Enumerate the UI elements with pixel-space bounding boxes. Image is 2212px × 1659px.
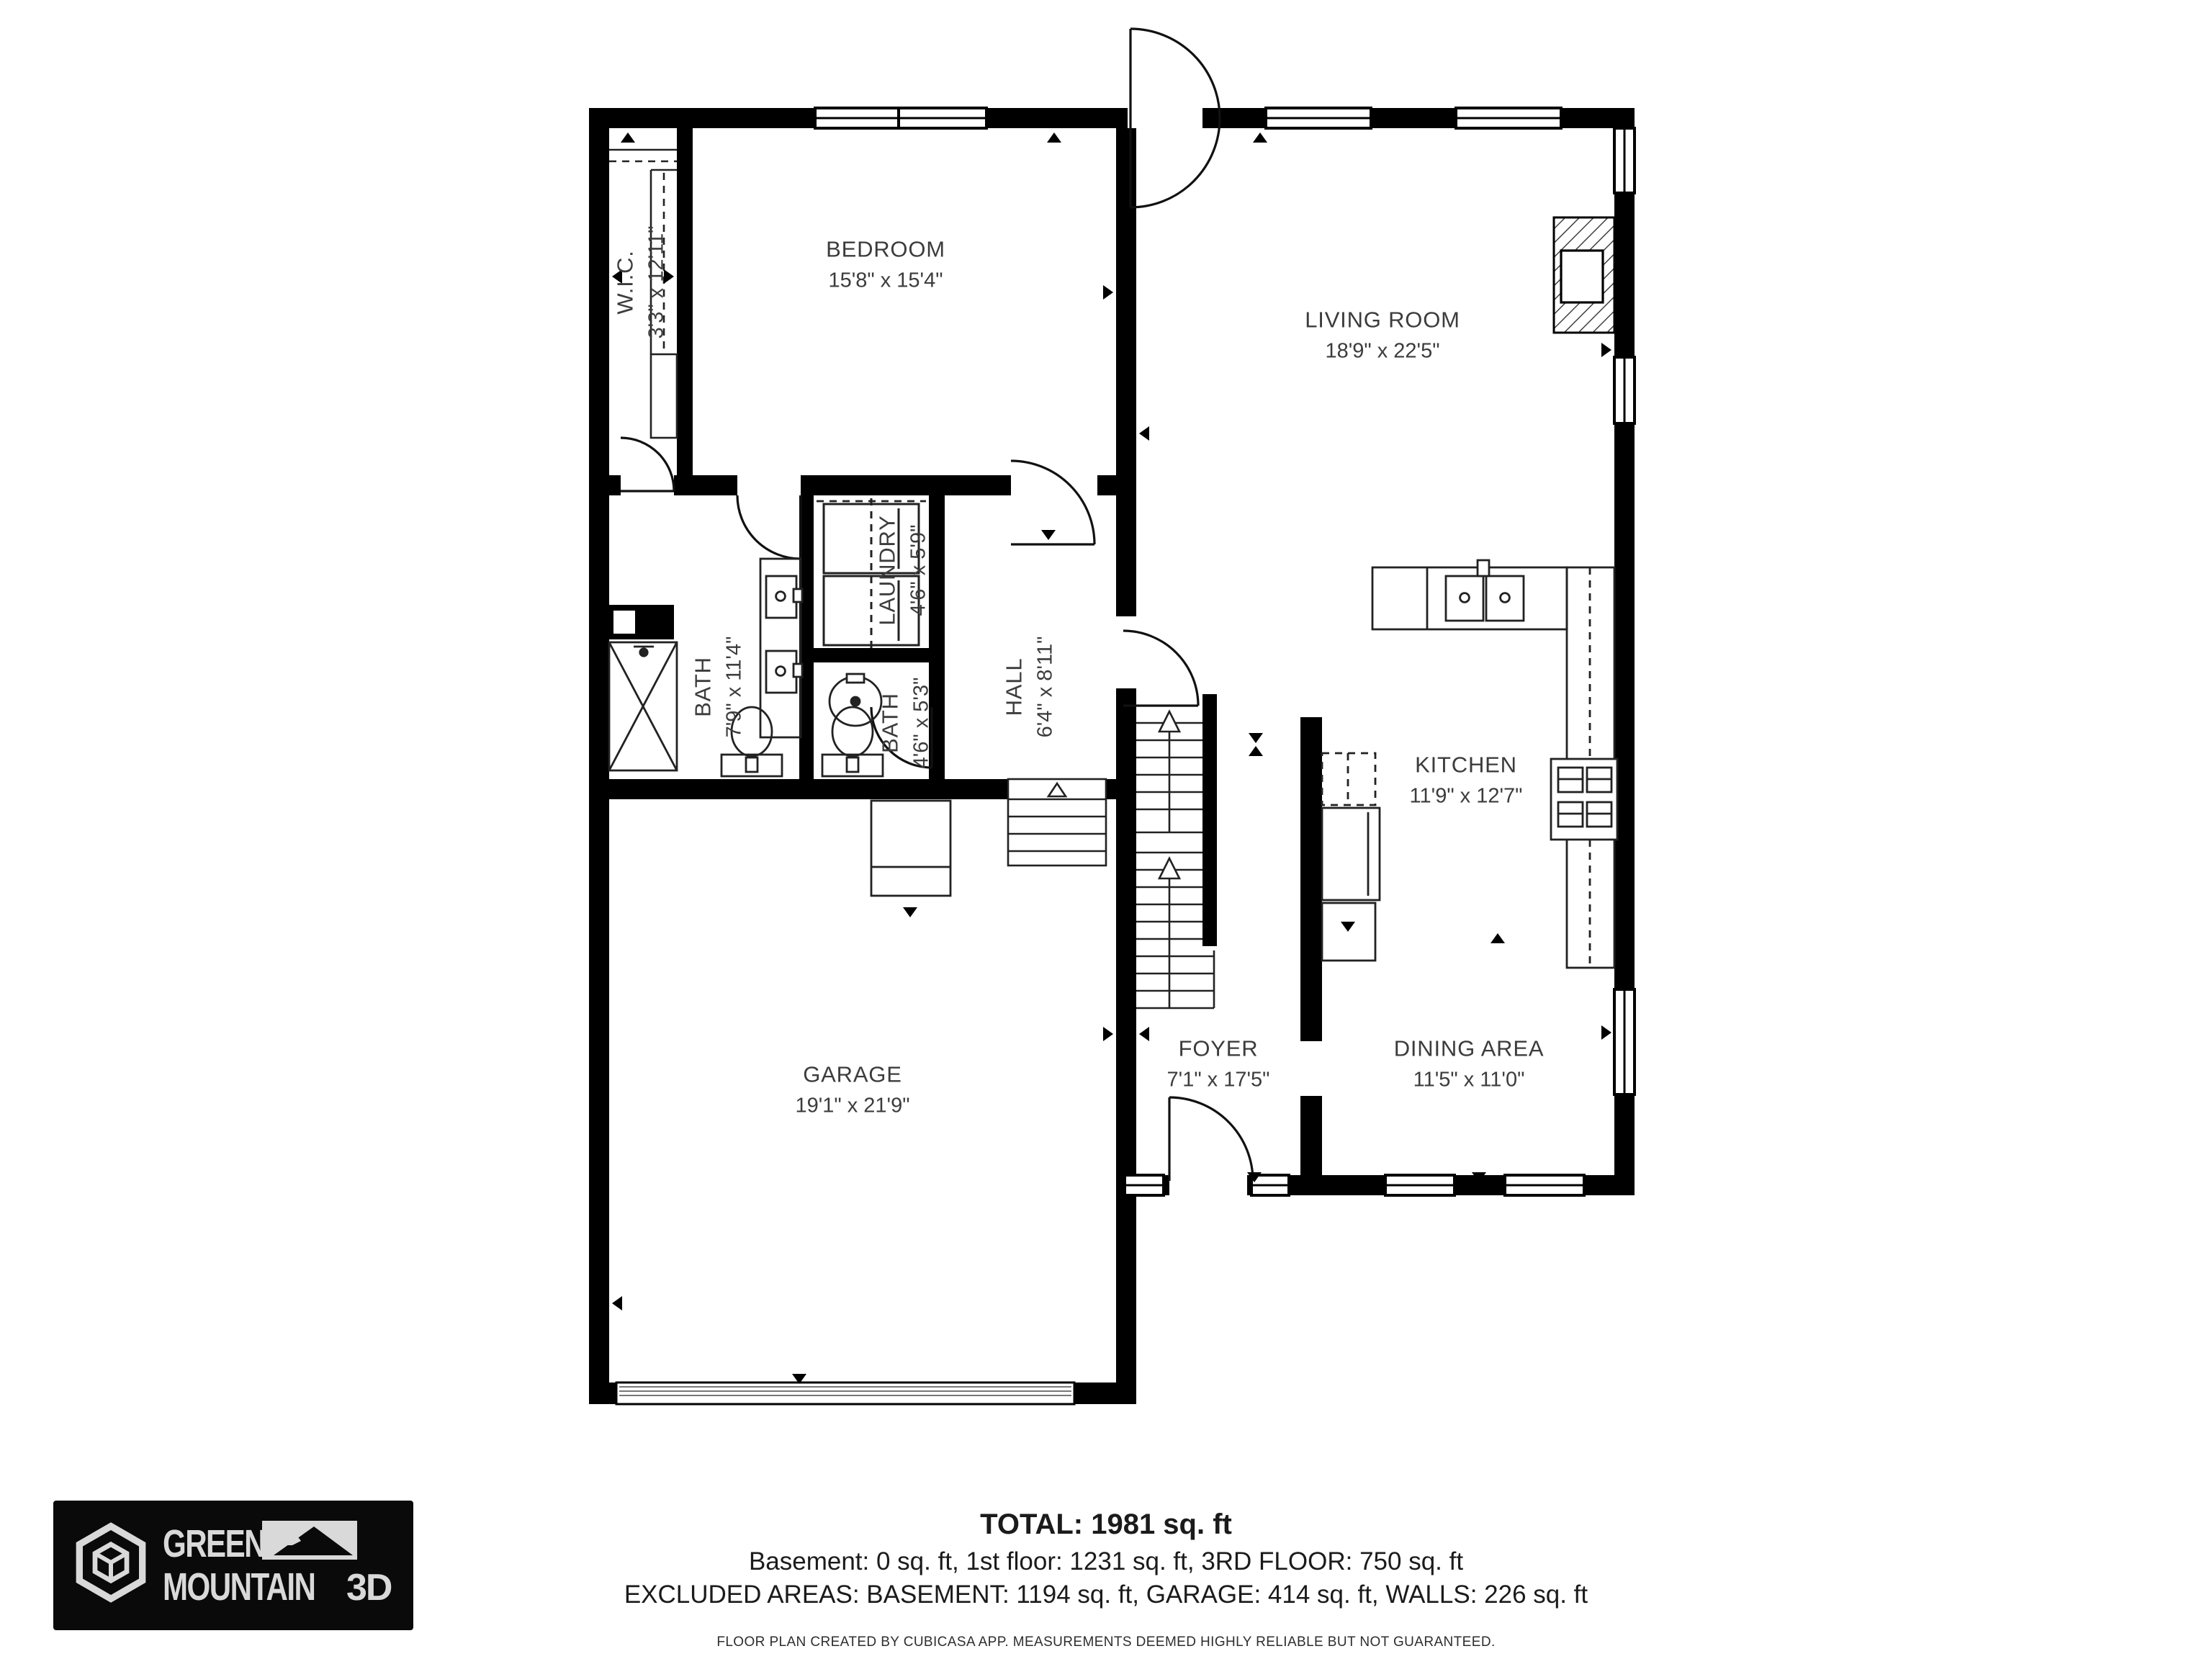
room-label-dining-area: DINING AREA11'5" x 11'0" [1394,1035,1545,1097]
mountain-icon [262,1521,357,1567]
stair-door [1123,631,1198,706]
room-label-wic: W.I.C.3'3" x 12'11" [611,226,674,339]
garage-door [616,1382,1074,1404]
room-label-kitchen: KITCHEN11'9" x 12'7" [1410,751,1523,814]
furnace [871,801,950,896]
room-label-foyer: FOYER7'1" x 17'5" [1167,1035,1270,1097]
disclaimer-text: FLOOR PLAN CREATED BY CUBICASA APP. MEAS… [0,1635,2212,1650]
vanity-double-sink [760,559,802,737]
bedroom-bath-door [737,495,801,559]
hexagon-cube-icon [71,1521,151,1609]
room-label-hall: HALL6'4" x 8'11" [1000,637,1063,738]
shower [609,642,677,770]
stairs [1136,711,1214,1008]
room-label-bath-small: BATH4'6" x 5'3" [876,678,939,769]
stove [1551,759,1617,840]
fixtures-layer [0,0,2212,1659]
entry-door-double-swing [1130,29,1220,207]
fireplace [1554,217,1614,333]
pedestal-sink [829,674,881,726]
base-cabinet [1322,903,1375,961]
room-label-laundry: LAUNDRY4'6" x 5'9" [873,515,936,625]
room-label-living-room: LIVING ROOM18'9" x 22'5" [1305,306,1460,369]
room-label-bath-large: BATH7'9" x 11'4" [689,637,752,738]
floor-plan-page: W.I.C.3'3" x 12'11" BEDROOM15'8" x 15'4"… [0,0,2212,1659]
room-label-bedroom: BEDROOM15'8" x 15'4" [826,235,945,298]
front-door [1169,1097,1253,1181]
logo-text-mountain: MOUNTAIN [163,1565,315,1609]
refrigerator [1322,753,1375,805]
garage-steps [1008,779,1106,866]
floor-plan-canvas: W.I.C.3'3" x 12'11" BEDROOM15'8" x 15'4"… [0,0,2212,1659]
wic-door [621,438,674,491]
logo-green-mountain-3d: GREEN MOUNTAIN 3D [53,1501,413,1630]
oven [1322,808,1380,900]
logo-text-green: GREEN [163,1521,265,1566]
room-label-garage: GARAGE19'1" x 21'9" [795,1061,909,1123]
logo-text-3d: 3D [346,1565,392,1609]
